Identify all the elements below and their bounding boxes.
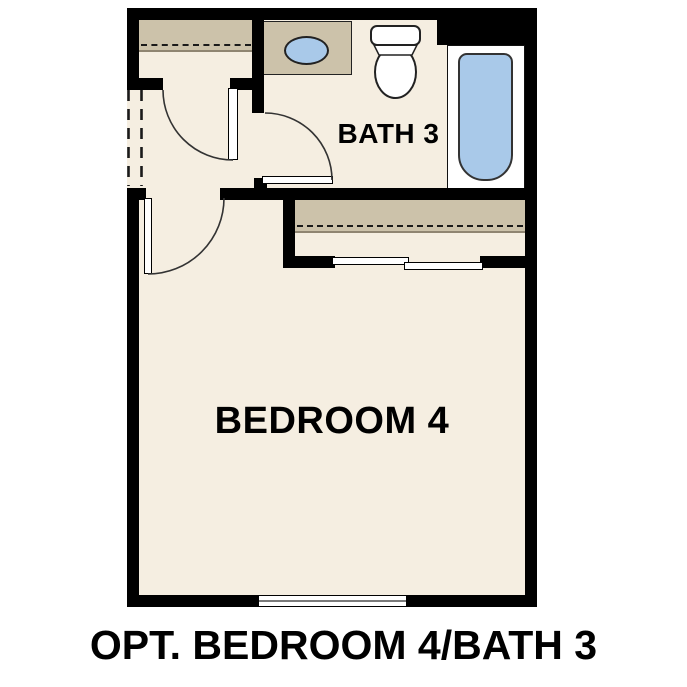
closet-rod-dashed-line [141,44,251,46]
bedroom-label: BEDROOM 4 [207,400,457,443]
hall-closet-jamb-left [127,78,163,90]
bathtub [458,53,513,181]
exterior-wall-right [525,8,537,607]
closet-bypass-door-right [404,262,483,270]
wall-block-above-tub [437,8,537,45]
closet-bypass-door-left [332,257,409,265]
closet-rod-dashed-line [297,225,523,227]
vanity-sink [284,36,329,65]
bedroom-window [258,595,407,607]
bedroom-closet-shelf [295,200,525,233]
bathroom-west-wall [252,8,264,113]
bedroom-closet-front-wall-left [283,256,335,268]
bedroom-door-leaf [144,198,152,274]
window-pane-line [259,600,406,603]
bathroom-bedroom-partition-wall [220,188,537,200]
exterior-wall-left-lower [127,188,139,607]
bathroom-door-leaf [262,176,333,184]
plan-caption: OPT. BEDROOM 4/BATH 3 [0,622,687,669]
hall-closet-door-leaf [228,88,238,160]
hall-closet-shelf [139,20,253,52]
bathroom-label: BATH 3 [316,118,461,150]
floor-plan: BATH 3 BEDROOM 4 [0,0,687,687]
